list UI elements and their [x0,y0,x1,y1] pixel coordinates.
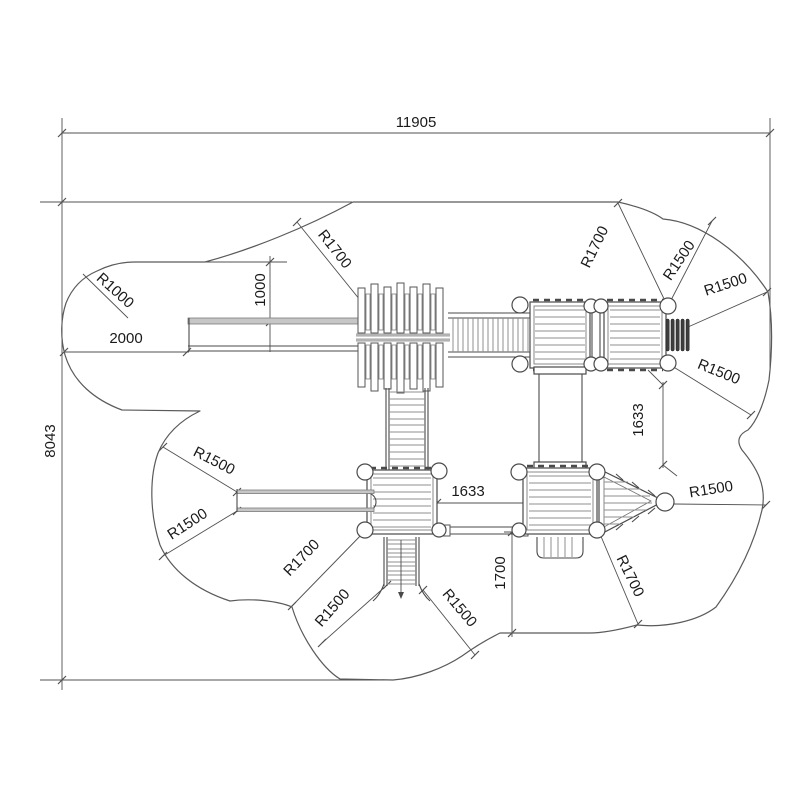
bridge-rungs [453,318,528,352]
top-center-platform [530,300,590,370]
staircase [386,388,428,470]
dimension-ticks [58,129,774,684]
triangle-deck [599,469,664,535]
radius-label-r1500-right-upper: R1500 [702,270,749,300]
lower-left-platform [367,468,437,534]
double-slide-rails [237,489,374,512]
lower-right-platform [523,466,597,534]
tube-walls [539,374,582,462]
stair-rails [386,388,428,470]
rung-bridge [448,313,530,357]
tube-collar-top [534,367,586,374]
ladder-rungs [387,540,416,584]
dim-overall-height: 8043 [42,424,59,457]
radius-label-r1500-right: R1500 [695,356,742,388]
stair-steps [389,392,425,466]
playground-plan-drawing: 11905 8043 2000 1000 1633 1633 1700 R100… [0,0,800,800]
dimension-layer: 11905 8043 2000 1000 1633 1633 1700 R100… [40,114,774,690]
playground-structure [188,283,689,601]
radius-label-r1700-top-left: R1700 [314,227,355,272]
dim-slide-offset: 1000 [252,273,269,306]
climbing-grips [666,319,689,351]
radius-label-r1700-bottom-left: R1700 [280,536,323,580]
palisade-tower [356,283,450,393]
radius-label-r1500-ladder-right: R1500 [439,586,480,631]
palisade-center-band [356,335,450,340]
radius-label-r1500-right-lower: R1500 [688,478,734,502]
radius-label-r1500-top-right: R1500 [660,237,699,283]
cad-canvas: 11905 8043 2000 1000 1633 1633 1700 R100… [0,0,800,800]
radius-label-r1500-mid-left-lower: R1500 [164,505,210,543]
palisade-planks-top [358,283,443,333]
dim-overall-width: 11905 [396,114,437,131]
comb-climber [537,537,583,558]
dim-gap-vertical: 1633 [630,403,647,436]
extension-and-dimension-lines [40,118,770,690]
left-slide [188,318,358,351]
dim-ladder-clearance: 1700 [492,556,509,589]
radius-label-r1700-top-right: R1700 [578,223,613,270]
radius-label-r1500-ladder-left: R1500 [312,586,354,631]
radius-label-r1500-mid-left-upper: R1500 [190,443,237,478]
centerline-arrow [398,592,404,599]
dim-slide-run: 2000 [109,330,142,347]
dim-gap-horizontal: 1633 [451,483,484,500]
crawl-tube [534,367,586,470]
slide-rail-top [188,318,358,324]
comb-bars [544,537,572,557]
palisade-planks-bottom [358,343,443,393]
